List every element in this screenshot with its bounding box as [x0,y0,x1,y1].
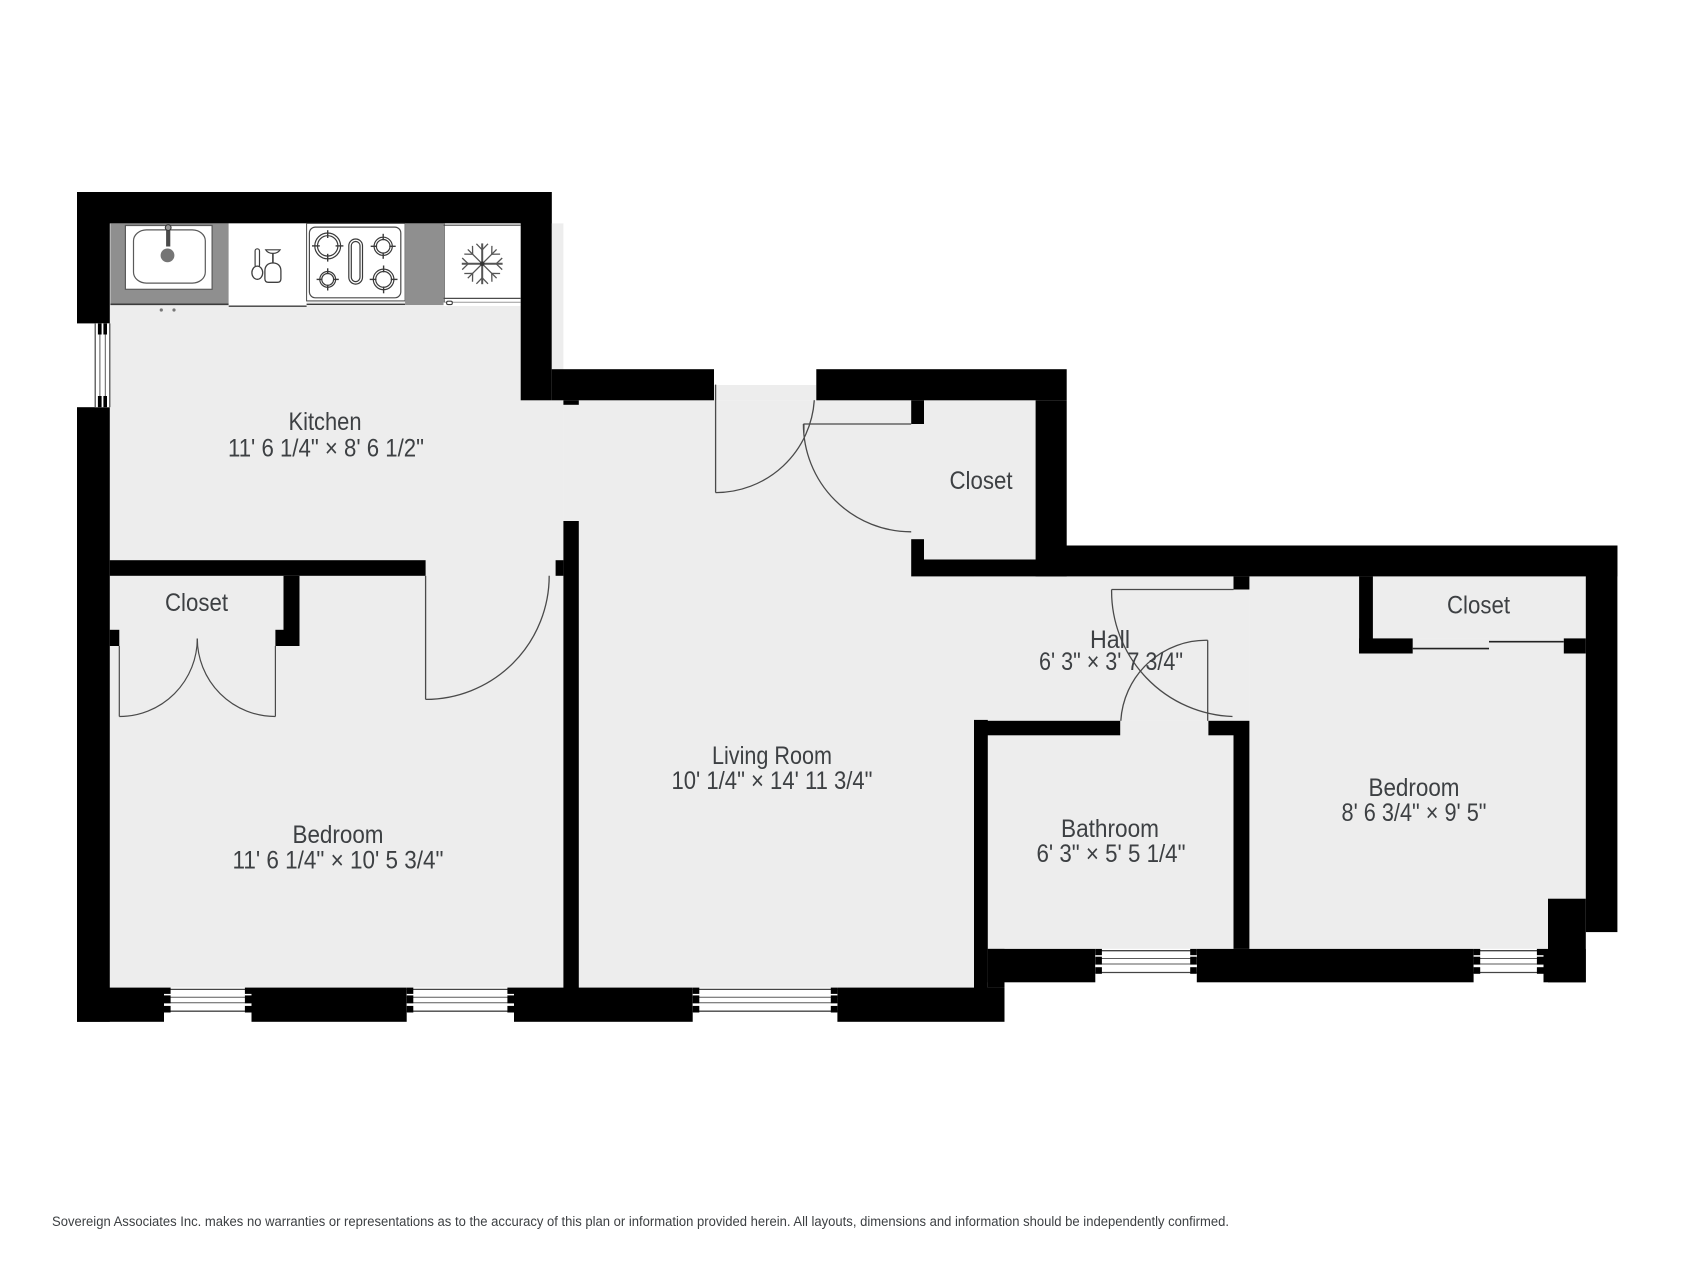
svg-text:11' 6 1/4" × 10' 5 3/4": 11' 6 1/4" × 10' 5 3/4" [233,847,444,875]
svg-text:6' 3" × 3' 7 3/4": 6' 3" × 3' 7 3/4" [1039,648,1183,676]
svg-text:Closet: Closet [165,589,228,617]
svg-text:11' 6 1/4" × 8' 6 1/2": 11' 6 1/4" × 8' 6 1/2" [228,435,424,463]
svg-text:Kitchen: Kitchen [289,408,362,436]
svg-text:Closet: Closet [1447,592,1510,620]
svg-text:10' 1/4" × 14' 11 3/4": 10' 1/4" × 14' 11 3/4" [672,767,873,795]
svg-text:Closet: Closet [950,467,1013,495]
svg-text:8' 6 3/4" × 9' 5": 8' 6 3/4" × 9' 5" [1342,799,1487,827]
svg-text:Bathroom: Bathroom [1061,815,1159,843]
svg-text:Bedroom: Bedroom [1369,774,1460,802]
svg-text:Living Room: Living Room [712,742,832,770]
svg-text:Bedroom: Bedroom [293,821,384,849]
svg-text:6' 3" × 5' 5 1/4": 6' 3" × 5' 5 1/4" [1037,840,1186,868]
svg-text:Sovereign Associates Inc. make: Sovereign Associates Inc. makes no warra… [52,1214,1229,1229]
